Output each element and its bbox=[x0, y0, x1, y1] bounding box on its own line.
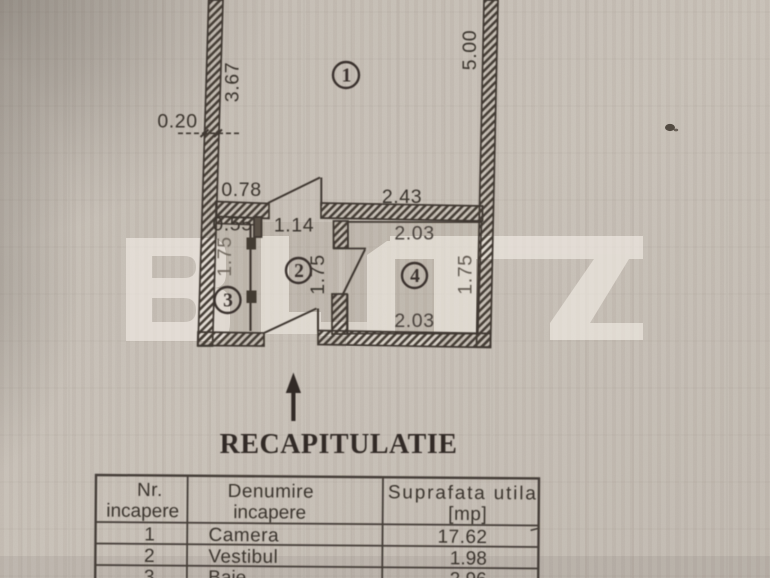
svg-text:2: 2 bbox=[144, 546, 155, 567]
svg-text:1.75: 1.75 bbox=[455, 254, 477, 294]
svg-text:1.98: 1.98 bbox=[450, 548, 487, 569]
svg-text:3: 3 bbox=[223, 291, 233, 312]
svg-text:RECAPITULATIE: RECAPITULATIE bbox=[220, 429, 458, 460]
svg-text:Vestibul: Vestibul bbox=[208, 546, 278, 568]
svg-text:5.00: 5.00 bbox=[459, 30, 481, 70]
svg-text:3: 3 bbox=[144, 567, 155, 578]
svg-text:Suprafata utila: Suprafata utila bbox=[388, 482, 537, 504]
svg-text:17.62: 17.62 bbox=[437, 527, 487, 548]
svg-text:2: 2 bbox=[294, 261, 304, 282]
svg-text:1: 1 bbox=[342, 66, 352, 87]
svg-text:0.78: 0.78 bbox=[221, 179, 261, 201]
svg-text:1.14: 1.14 bbox=[274, 215, 314, 237]
svg-text:2.96: 2.96 bbox=[450, 569, 487, 578]
svg-text:[mp]: [mp] bbox=[448, 504, 487, 525]
svg-text:4: 4 bbox=[410, 266, 420, 287]
svg-text:1: 1 bbox=[144, 524, 155, 545]
svg-text:2.43: 2.43 bbox=[382, 186, 422, 208]
svg-text:Denumire: Denumire bbox=[228, 481, 315, 503]
svg-text:1.75: 1.75 bbox=[214, 236, 236, 276]
svg-text:0.20: 0.20 bbox=[157, 111, 197, 133]
svg-text:2.03: 2.03 bbox=[394, 223, 434, 245]
svg-text:Nr.: Nr. bbox=[137, 480, 163, 501]
svg-text:Baie: Baie bbox=[208, 567, 246, 578]
svg-text:Camera: Camera bbox=[208, 525, 279, 547]
svg-text:3.67: 3.67 bbox=[222, 62, 244, 102]
svg-text:incapere: incapere bbox=[106, 501, 179, 523]
svg-text:incapere: incapere bbox=[233, 502, 306, 524]
svg-text:0.55: 0.55 bbox=[212, 214, 252, 236]
svg-text:2.03: 2.03 bbox=[394, 310, 434, 332]
